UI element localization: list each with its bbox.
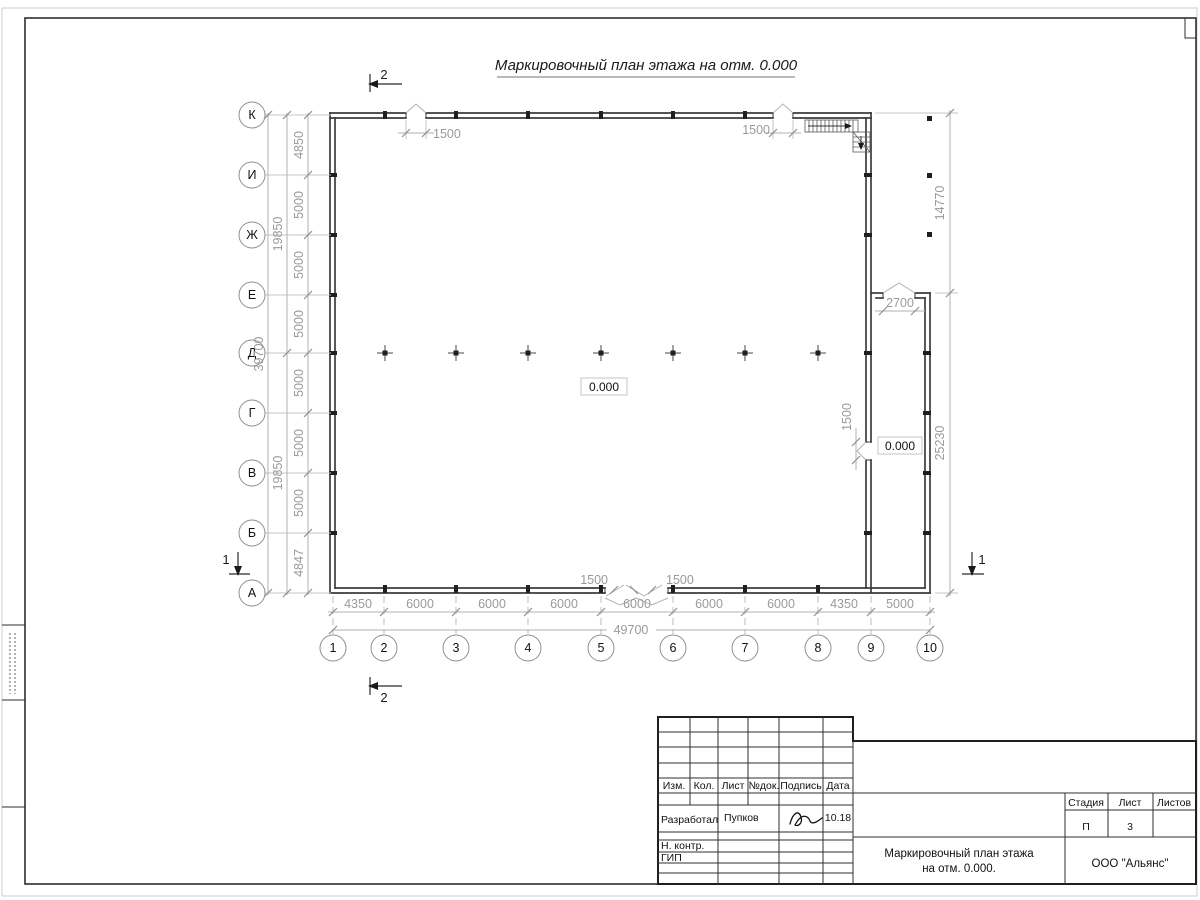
tb-company: ООО "Альянс" (1092, 858, 1169, 870)
tb-sheets-label: Листов (1157, 797, 1192, 809)
tb-header-list: Лист (722, 780, 745, 792)
dim-right-upper: 14770 (933, 186, 947, 221)
axis-label-V: В (248, 466, 256, 480)
dims-top-openings: 1500 1500 (398, 120, 801, 141)
section-label-left: 1 (222, 552, 229, 567)
page-title: Маркировочный план этажа на отм. 0.000 (495, 57, 798, 74)
dim-left-1: 4850 (292, 131, 306, 159)
tb-role-developer: Разработал (661, 814, 718, 826)
wall-column-marks (329, 111, 932, 593)
section-mark-left: 1 (222, 552, 250, 576)
dim-bottom-2: 6000 (406, 597, 434, 611)
section-mark-bottom: 2 (368, 677, 402, 705)
dim-bottom-1: 4350 (344, 597, 372, 611)
dims-right: 14770 25230 2700 1500 (840, 109, 958, 597)
dim-bottom-9: 5000 (886, 597, 914, 611)
dim-left-8: 4847 (292, 549, 306, 577)
dim-left-sub-1: 19850 (271, 217, 285, 252)
drawing-sheet: Маркировочный план этажа на отм. 0.000 (0, 0, 1200, 900)
axis-label-9: 9 (868, 641, 875, 655)
interior-columns (377, 345, 826, 361)
dim-top-opening-2: 1500 (742, 123, 770, 137)
axis-label-2: 2 (381, 641, 388, 655)
dim-bottom-7: 6000 (767, 597, 795, 611)
dim-right-lower: 25230 (933, 426, 947, 461)
dim-left-sub-2: 19850 (271, 456, 285, 491)
axis-label-8: 8 (815, 641, 822, 655)
left-margin-cells (2, 625, 25, 807)
tb-header-ndok: №док. (749, 780, 780, 792)
dim-top-opening-1: 1500 (433, 127, 461, 141)
tb-header-kol: Кол. (694, 780, 715, 792)
axis-label-A: А (248, 586, 257, 600)
section-label-bottom: 2 (380, 690, 387, 705)
dim-ext-opening: 2700 (886, 296, 914, 310)
axis-label-1: 1 (330, 641, 337, 655)
axis-label-G: Г (249, 406, 256, 420)
tb-stage-label: Стадия (1068, 797, 1104, 809)
tb-role-gip: ГИП (661, 852, 682, 864)
axis-label-6: 6 (670, 641, 677, 655)
dim-right-door: 1500 (840, 403, 854, 431)
section-label-right: 1 (978, 552, 985, 567)
section-mark-right: 1 (962, 552, 986, 576)
tb-stage-value: П (1082, 821, 1090, 833)
tb-sheet-value: 3 (1127, 821, 1133, 833)
dimension-ticks (264, 111, 312, 597)
building-walls (330, 113, 930, 593)
dim-left-4: 5000 (292, 310, 306, 338)
axis-label-K: К (248, 108, 256, 122)
dim-bottom-8: 4350 (830, 597, 858, 611)
dim-bottom-total: 49700 (614, 623, 649, 637)
corner-box (1185, 18, 1196, 38)
staircase (805, 120, 870, 152)
dims-bottom: 4350 6000 6000 6000 6000 6000 6000 4350 … (328, 597, 935, 637)
dim-left-2: 5000 (292, 191, 306, 219)
elevation-extension: 0.000 (885, 439, 915, 453)
opening-jambs (406, 113, 915, 593)
elevation-center: 0.000 (589, 380, 619, 394)
sheet-frame (2, 8, 1197, 896)
dim-bottom-3: 6000 (478, 597, 506, 611)
section-label-top: 2 (380, 67, 387, 82)
axis-label-4: 4 (525, 641, 532, 655)
section-mark-top: 2 (368, 67, 402, 92)
axis-label-E: Е (248, 288, 256, 302)
dims-bottom-openings: 1500 1500 (580, 573, 694, 587)
dim-bottom-opening-2: 1500 (666, 573, 694, 587)
tb-sheet-label: Лист (1119, 797, 1142, 809)
tb-date-developer: 10.18 (825, 812, 851, 824)
axis-label-I: И (248, 168, 257, 182)
tb-header-izm: Изм. (663, 780, 686, 792)
tb-name-developer: Пупков (724, 812, 759, 824)
signature (790, 813, 822, 826)
door-swing-marks (406, 104, 915, 605)
axis-label-Zh: Ж (246, 228, 258, 242)
tb-header-podpis: Подпись (780, 780, 822, 792)
dim-left-5: 5000 (292, 369, 306, 397)
tb-header-data: Дата (826, 780, 849, 792)
axis-label-10: 10 (923, 641, 937, 655)
drawing-title: Маркировочный план этажа на отм. 0.000 (495, 57, 798, 77)
dim-left-6: 5000 (292, 429, 306, 457)
axis-label-B: Б (248, 526, 256, 540)
dim-left-total: 39700 (252, 337, 266, 372)
tb-role-ncontrol: Н. контр. (661, 840, 704, 852)
dim-bottom-5: 6000 (623, 597, 651, 611)
axis-label-7: 7 (742, 641, 749, 655)
tb-doc-title-2: на отм. 0.000. (922, 863, 996, 875)
dim-bottom-opening-1: 1500 (580, 573, 608, 587)
dim-left-3: 5000 (292, 251, 306, 279)
dim-left-7: 5000 (292, 489, 306, 517)
axis-label-3: 3 (453, 641, 460, 655)
axis-label-5: 5 (598, 641, 605, 655)
dim-bottom-4: 6000 (550, 597, 578, 611)
dim-bottom-6: 6000 (695, 597, 723, 611)
title-block: Изм. Кол. Лист №док. Подпись Дата Разраб… (658, 717, 1196, 884)
tb-doc-title-1: Маркировочный план этажа (884, 848, 1034, 860)
